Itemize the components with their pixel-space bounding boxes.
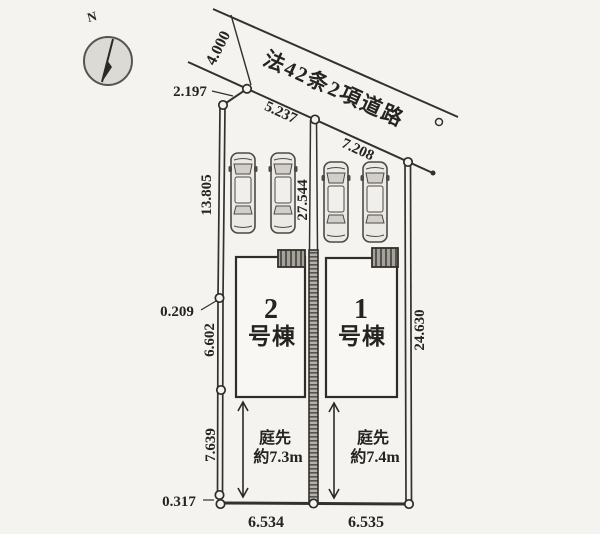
garden-size-1: 約7.4m — [350, 447, 400, 466]
dim-0209-leader — [201, 301, 216, 310]
building-1-number: 1 — [354, 294, 368, 325]
north-label: N — [85, 8, 99, 25]
site-plan-diagram: N 法42条2項道路 4.000 2 号棟 1 号棟 — [0, 0, 600, 534]
survey-point — [215, 491, 223, 499]
dim-2197: 2.197 — [173, 84, 207, 100]
dim-6535: 6.535 — [348, 514, 384, 531]
dim-0317: 0.317 — [162, 494, 196, 510]
building-2-number: 2 — [264, 294, 278, 325]
dim-13805: 13.805 — [199, 174, 215, 215]
road-width-dim: 4.000 — [203, 28, 234, 68]
dim-6602: 6.602 — [202, 323, 218, 357]
building-1-suffix: 号棟 — [338, 324, 386, 349]
road: 法42条2項道路 4.000 — [188, 9, 458, 176]
dim-2197-leader — [212, 91, 233, 96]
road-edge-end-dot — [431, 171, 436, 176]
car-icon — [269, 153, 298, 233]
dim-24630: 24.630 — [412, 309, 428, 350]
garden-size-2: 約7.3m — [253, 447, 303, 466]
car-icon — [361, 162, 390, 242]
boundary-right-outer — [405, 164, 406, 503]
survey-point — [217, 386, 225, 394]
survey-point — [405, 500, 413, 508]
garden-word-1: 庭先 — [357, 428, 389, 447]
north-compass: N — [84, 8, 132, 85]
car-icon — [229, 153, 258, 233]
dim-6534: 6.534 — [248, 514, 284, 531]
survey-point — [216, 500, 224, 508]
entrance-porch-icon-2 — [278, 250, 305, 267]
car-icon — [322, 162, 351, 242]
dim-7639: 7.639 — [203, 428, 219, 462]
dim-5237: 5.237 — [262, 99, 300, 128]
survey-point — [404, 158, 412, 166]
dim-0209: 0.209 — [160, 304, 194, 320]
survey-point — [219, 101, 227, 109]
garden-word-2: 庭先 — [259, 428, 291, 447]
road-edge-end-mark — [436, 119, 443, 126]
survey-point — [215, 294, 223, 302]
lot-divider-fence — [309, 250, 318, 503]
divider-upper-right — [317, 120, 318, 250]
survey-point — [309, 499, 317, 507]
building-2-suffix: 号棟 — [248, 324, 296, 349]
building-2: 2 号棟 — [236, 250, 305, 397]
site-plan-page: N 法42条2項道路 4.000 2 号棟 1 号棟 — [0, 0, 600, 534]
survey-point — [243, 85, 251, 93]
survey-point — [311, 115, 319, 123]
entrance-porch-icon-1 — [372, 248, 398, 267]
building-1: 1 号棟 — [326, 248, 398, 397]
dim-27544: 27.544 — [295, 179, 311, 221]
